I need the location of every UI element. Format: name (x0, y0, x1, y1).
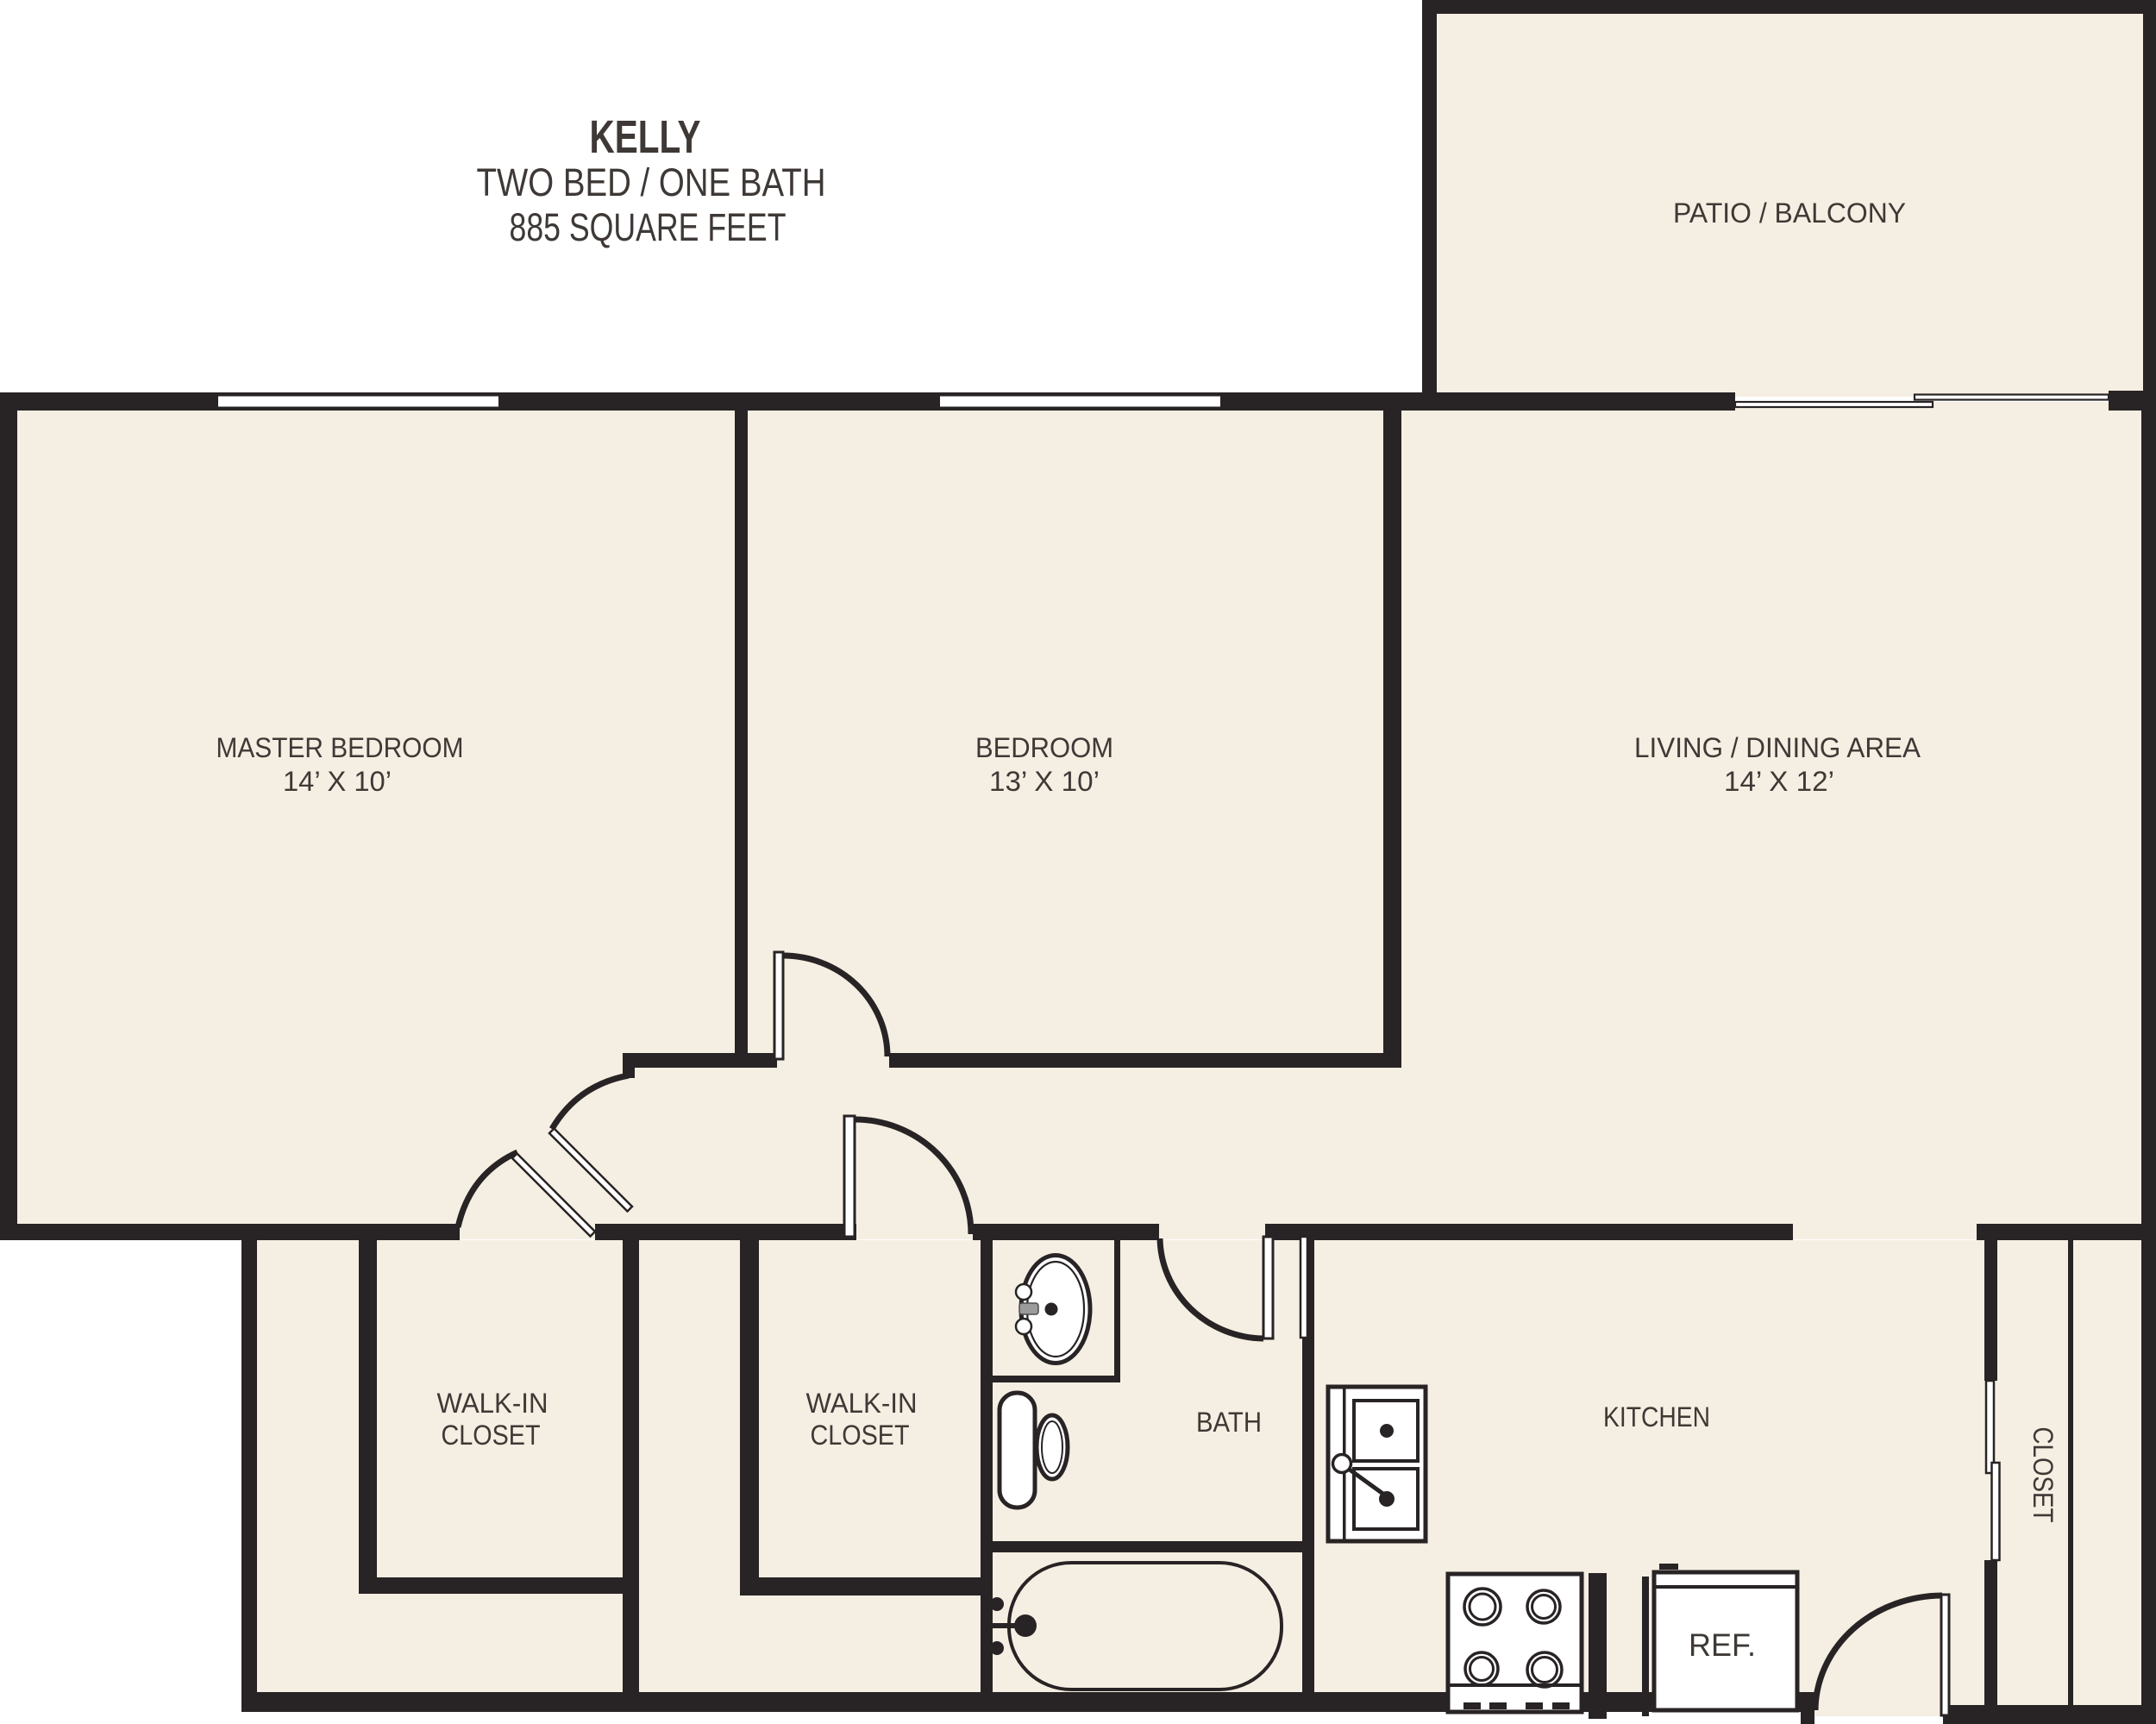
svg-text:KELLY: KELLY (590, 111, 701, 163)
svg-text:14’ X 12’: 14’ X 12’ (1724, 766, 1834, 797)
svg-text:PATIO / BALCONY: PATIO / BALCONY (1673, 197, 1906, 229)
svg-text:REF.: REF. (1689, 1627, 1756, 1663)
svg-text:BATH: BATH (1196, 1407, 1262, 1438)
svg-text:13’ X 10’: 13’ X 10’ (989, 766, 1100, 797)
svg-text:LIVING / DINING AREA: LIVING / DINING AREA (1634, 732, 1921, 763)
svg-text:CLOSET: CLOSET (442, 1420, 541, 1451)
svg-text:WALK-IN: WALK-IN (437, 1388, 548, 1419)
svg-text:885 SQUARE FEET: 885 SQUARE FEET (510, 205, 787, 249)
svg-text:KITCHEN: KITCHEN (1603, 1401, 1710, 1432)
svg-text:14’ X 10’: 14’ X 10’ (283, 766, 392, 797)
svg-text:MASTER BEDROOM: MASTER BEDROOM (216, 732, 464, 763)
svg-text:TWO BED / ONE BATH: TWO BED / ONE BATH (477, 160, 826, 204)
svg-text:CLOSET: CLOSET (811, 1420, 910, 1451)
svg-text:BEDROOM: BEDROOM (975, 732, 1113, 763)
svg-text:CLOSET: CLOSET (2028, 1427, 2059, 1523)
svg-text:WALK-IN: WALK-IN (806, 1388, 918, 1419)
